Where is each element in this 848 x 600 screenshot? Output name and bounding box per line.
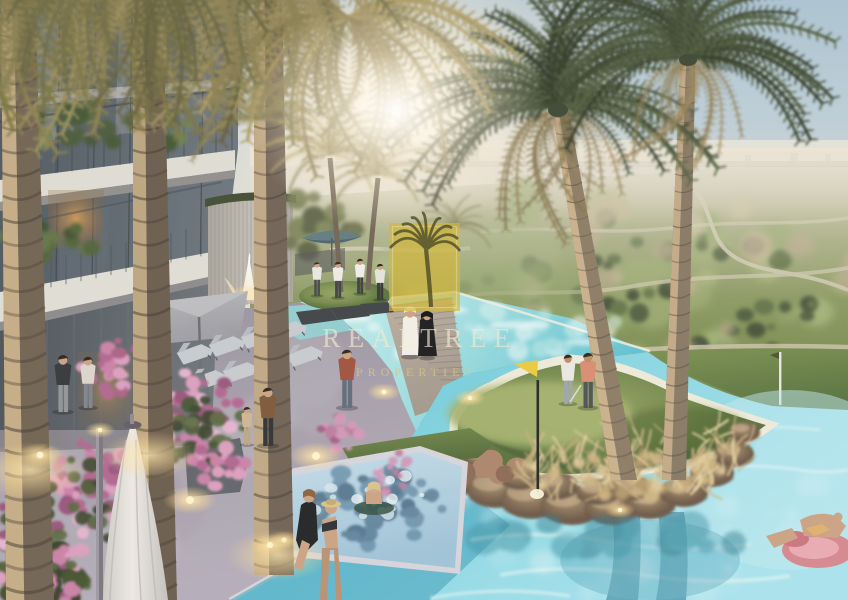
svg-text:PROPERTIES: PROPERTIES xyxy=(356,365,476,379)
svg-text:REALTREE: REALTREE xyxy=(322,323,518,353)
